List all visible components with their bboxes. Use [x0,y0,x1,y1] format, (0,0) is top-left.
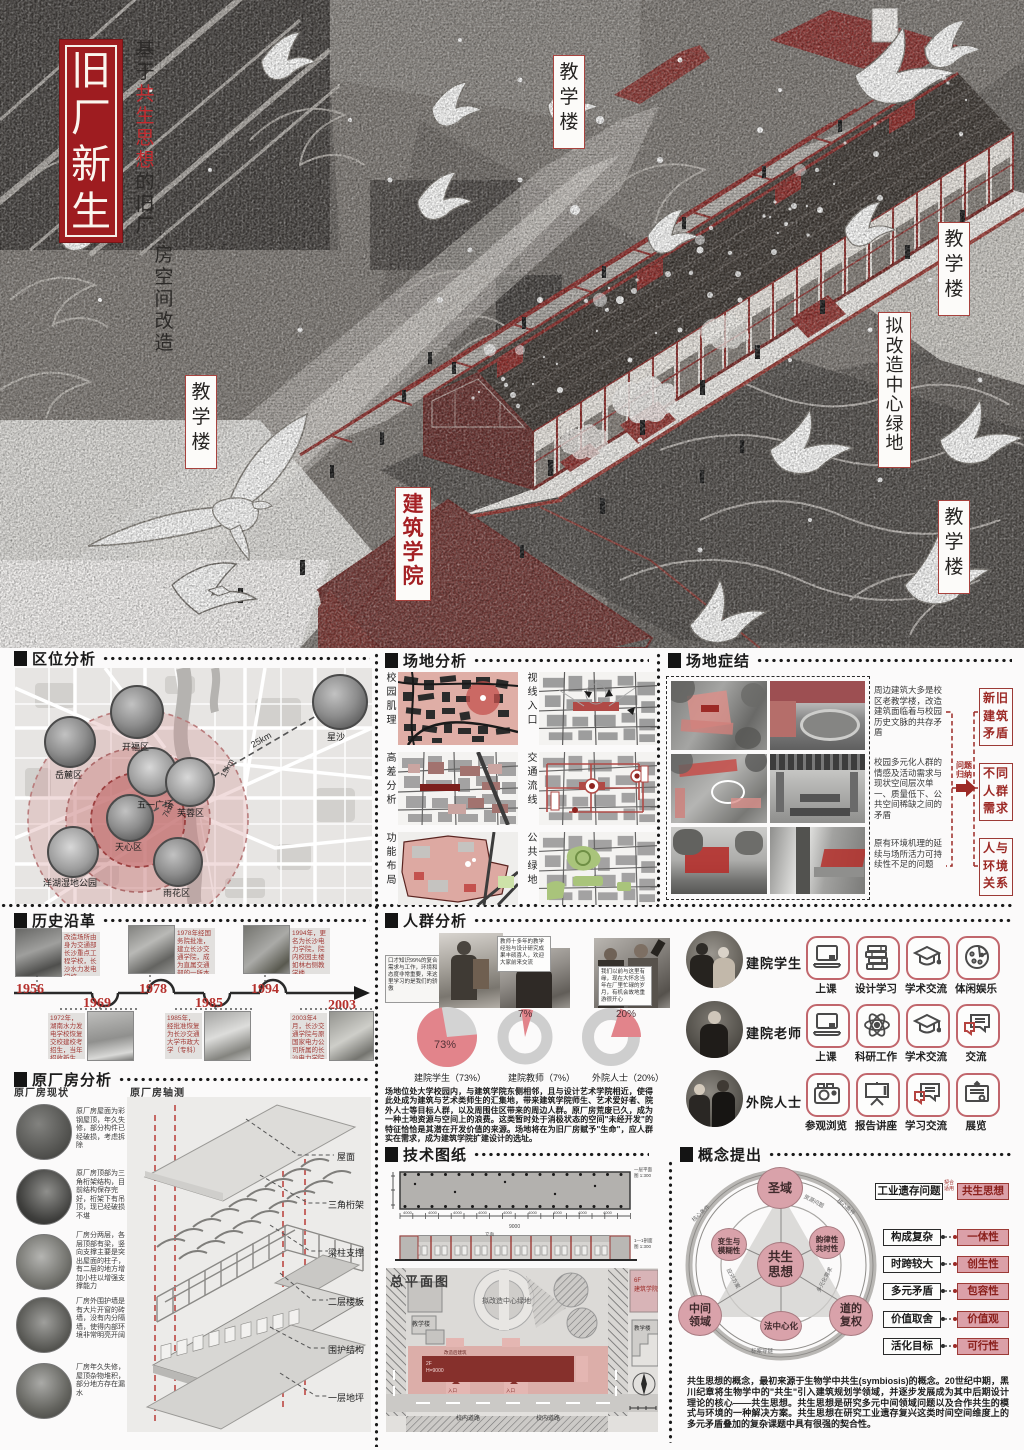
svg-text:问题: 问题 [956,760,973,770]
svg-text:4000: 4000 [428,1210,438,1215]
svg-text:73%: 73% [434,1039,456,1051]
svg-text:4000: 4000 [528,1210,538,1215]
svg-text:雨花区: 雨花区 [163,887,190,898]
svg-text:4000: 4000 [603,1210,613,1215]
svg-text:改造后建筑: 改造后建筑 [444,1349,467,1356]
svg-text:20%: 20% [616,1009,636,1020]
svg-text:4000: 4000 [553,1210,563,1215]
svg-text:4000: 4000 [503,1210,513,1215]
svg-text:校内道路: 校内道路 [536,1414,560,1422]
svg-text:教学楼: 教学楼 [634,1324,651,1332]
svg-text:H=9000: H=9000 [426,1368,444,1374]
svg-text:开福区: 开福区 [122,741,149,752]
svg-text:校内道路: 校内道路 [456,1414,480,1422]
svg-text:天心区: 天心区 [115,842,142,852]
svg-text:教学楼: 教学楼 [412,1320,430,1328]
svg-text:标案导链: 标案导链 [751,1347,774,1355]
svg-text:岳麓区: 岳麓区 [55,769,82,780]
svg-text:4000: 4000 [453,1210,463,1215]
svg-text:五一广场: 五一广场 [137,799,173,810]
svg-text:4000: 4000 [478,1210,488,1215]
svg-text:4000: 4000 [578,1210,588,1215]
svg-text:芙蓉区: 芙蓉区 [177,807,204,818]
svg-text:2F: 2F [426,1361,432,1367]
svg-text:9000: 9000 [509,1224,520,1230]
svg-text:资源问题: 资源问题 [802,1192,826,1210]
svg-text:7%: 7% [518,1009,533,1020]
svg-text:星沙: 星沙 [327,732,345,742]
svg-text:4000: 4000 [403,1210,413,1215]
svg-text:归纳: 归纳 [956,769,972,779]
svg-text:洋湖湿地公园: 洋湖湿地公园 [43,877,97,888]
svg-text:6F: 6F [634,1278,641,1284]
svg-text:建筑学院: 建筑学院 [634,1285,658,1293]
